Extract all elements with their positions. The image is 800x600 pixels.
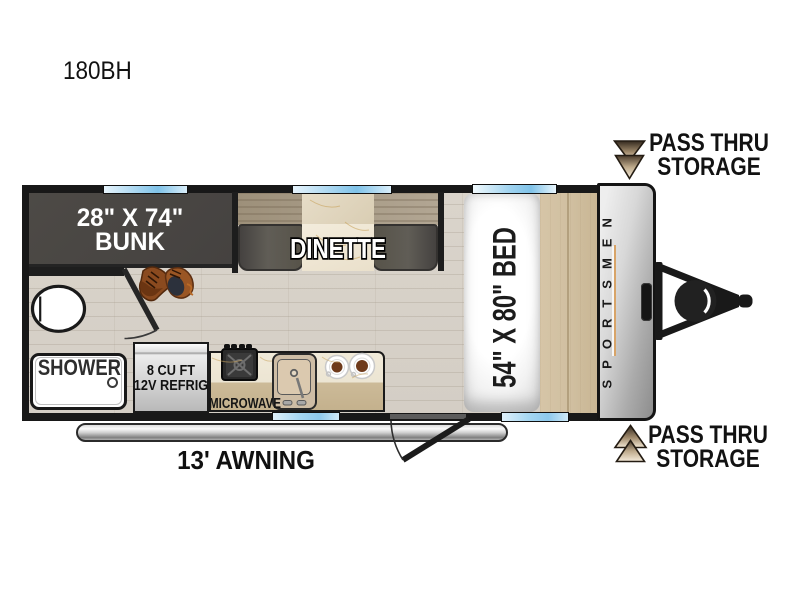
svg-text:DINETTE: DINETTE <box>290 234 386 265</box>
